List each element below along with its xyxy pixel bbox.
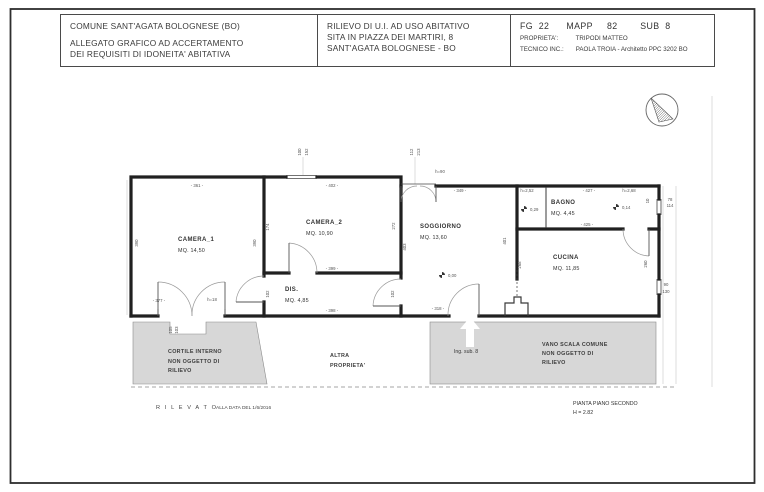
level-markers: 0,290,140,00 (439, 204, 631, 278)
windows (158, 176, 661, 317)
dim-label: 152 (304, 148, 309, 156)
attachment-line2: DEI REQUISITI DI IDONEITA' ABITATIVA (70, 49, 309, 60)
technician-label: TECNICO INC.: (520, 46, 574, 53)
room-name-label: CUCINA (553, 255, 579, 261)
dim-label: 100 (297, 148, 302, 156)
dim-label: 390 (134, 239, 139, 247)
zone-cortile-line2: NON OGGETTO DI (168, 359, 220, 365)
survey-line2: SITA IN PIAZZA DEI MARTIRI, 8 (327, 32, 502, 43)
level-marker-icon (613, 204, 619, 210)
title-block: COMUNE SANT'AGATA BOLOGNESE (BO) ALLEGAT… (60, 14, 715, 67)
dim-label: - 399 - (326, 266, 339, 271)
zone-vano-line3: RILIEVO (542, 360, 566, 366)
zone-cortile-line3: RILIEVO (168, 368, 192, 374)
technician-value: PAOLA TROIA - Architetto PPC 3202 BO (576, 46, 688, 53)
dim-label: 403 (402, 243, 407, 251)
dim-label: 268 (517, 261, 522, 269)
room-area-label: MQ. 11,85 (553, 266, 580, 272)
title-block-cadastral: FG 22 MAPP 82 SUB 8 PROPRIETA': TRIPODI … (510, 15, 714, 66)
level-value-label: 0,14 (622, 205, 631, 210)
north-arrow-icon (646, 94, 678, 126)
footer-notes: R I L E V A T O ALLA DATA DEL 1/6/2016 P… (156, 401, 638, 416)
level-value-label: 0,29 (530, 207, 539, 212)
sheet-border (11, 9, 755, 483)
room-area-label: MQ. 4,45 (551, 211, 575, 217)
room-area-label: MQ. 13,60 (420, 235, 447, 241)
dim-label: 114 (667, 203, 674, 208)
dim-label: - 361 - (191, 183, 204, 188)
dim-label: 103 (174, 326, 179, 334)
dim-label: 10 (645, 198, 650, 203)
attachment-line1: ALLEGATO GRAFICO AD ACCERTAMENTO (70, 38, 309, 49)
dim-label: 272 (391, 222, 396, 230)
drawing-sheet: CORTILE INTERNO NON OGGETTO DI RILIEVO A… (0, 0, 764, 492)
entry-label: Ing. sub. 8 (454, 349, 478, 355)
dim-label: 401 (502, 237, 507, 245)
dim-label: - 427 - (583, 188, 596, 193)
title-block-municipality: COMUNE SANT'AGATA BOLOGNESE (BO) ALLEGAT… (61, 15, 317, 66)
zone-vano-line1: VANO SCALA COMUNE (542, 342, 608, 348)
owner-value: TRIPODI MATTEO (576, 35, 628, 42)
dim-label: 260 (643, 260, 648, 268)
zone-vano-line2: NON OGGETTO DI (542, 351, 594, 357)
surveyed-date: ALLA DATA DEL 1/6/2016 (216, 405, 271, 411)
dim-label: h=2,52 (520, 188, 534, 193)
dim-label: 130 (662, 289, 670, 294)
room-labels: CAMERA_1MQ. 14,50CAMERA_2MQ. 10,90DIS.MQ… (178, 200, 580, 304)
owner-label: PROPRIETA': (520, 35, 574, 42)
surveyed-word: R I L E V A T O (156, 405, 218, 411)
plan-title: PIANTA PIANO SECONDO (573, 401, 638, 407)
zone-altra-line1: ALTRA (330, 353, 349, 359)
zone-cortile-line1: CORTILE INTERNO (168, 349, 222, 355)
level-marker-icon (521, 206, 527, 212)
room-name-label: CAMERA_1 (178, 237, 214, 243)
dim-label: 105 (168, 326, 173, 334)
level-marker-icon (439, 272, 445, 278)
dim-label: 102 (265, 290, 270, 298)
dim-label: - 402 - (326, 183, 339, 188)
dim-label: 213 (416, 148, 421, 156)
room-area-label: MQ. 10,90 (306, 231, 333, 237)
floor-plan-canvas: CORTILE INTERNO NON OGGETTO DI RILIEVO A… (0, 0, 764, 492)
dim-label: 102 (390, 290, 395, 298)
dim-label: 390 (252, 239, 257, 247)
walls (131, 177, 659, 316)
room-area-label: MQ. 14,50 (178, 248, 205, 254)
municipality-line: COMUNE SANT'AGATA BOLOGNESE (BO) (70, 21, 309, 32)
survey-line1: RILIEVO DI U.I. AD USO ABITATIVO (327, 21, 502, 32)
dim-label: - 398 - (326, 308, 339, 313)
room-name-label: SOGGIORNO (420, 224, 461, 230)
dim-label: 174 (265, 223, 270, 231)
owner-row: PROPRIETA': TRIPODI MATTEO (520, 35, 706, 42)
survey-line3: SANT'AGATA BOLOGNESE - BO (327, 43, 502, 54)
technician-row: TECNICO INC.: PAOLA TROIA - Architetto P… (520, 46, 706, 53)
dim-label: - 377 - (153, 298, 166, 303)
plan-height: H = 2.82 (573, 410, 593, 416)
dim-label: h=2,68 (622, 188, 636, 193)
dim-label: h=90 (435, 169, 445, 174)
dim-label: 78 (668, 197, 673, 202)
partition-lines (505, 187, 546, 316)
room-area-label: MQ. 4,85 (285, 298, 309, 304)
dim-label: - 425 - (581, 222, 594, 227)
zone-altra-line2: PROPRIETA' (330, 363, 365, 369)
dim-label: 112 (409, 148, 414, 155)
title-block-subject: RILIEVO DI U.I. AD USO ABITATIVO SITA IN… (317, 15, 510, 66)
room-name-label: CAMERA_2 (306, 220, 342, 226)
level-value-label: 0,00 (448, 273, 457, 278)
room-name-label: BAGNO (551, 200, 575, 206)
dim-label: h=18 (207, 297, 217, 302)
dim-label: - 318 - (432, 306, 445, 311)
dim-label: 90 (664, 282, 669, 287)
cadastral-ref: FG 22 MAPP 82 SUB 8 (520, 21, 706, 31)
room-name-label: DIS. (285, 287, 298, 293)
dim-label: - 349 - (454, 188, 467, 193)
